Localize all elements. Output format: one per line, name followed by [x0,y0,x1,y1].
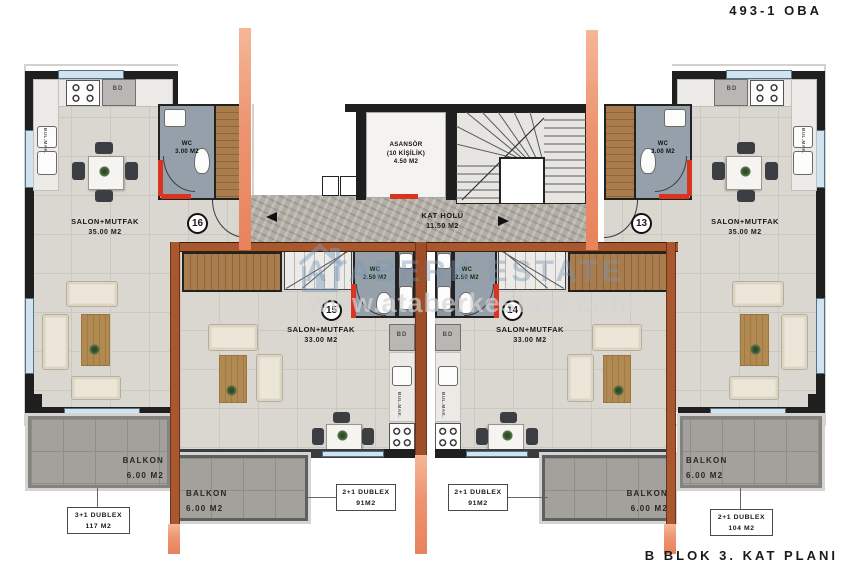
leader-line [97,488,98,507]
elevator-label: ASANSÖR (10 KİŞİLİK) 4.50 M2 [366,141,446,167]
room-label: SALON+MUTFAK 33.00 M2 [477,325,583,346]
fridge-label: BD [102,86,134,92]
balcony-label: BALKON 6.00 M2 [186,486,256,516]
plan-caption: B BLOK 3. KAT PLANI [645,548,838,563]
leader-line [740,488,741,509]
fridge-label: BD [389,332,415,338]
balcony-label: BALKON 6.00 M2 [100,453,164,483]
appliance-label: BUL.MAK. [440,392,445,418]
unit-tag: 3+1 DUBLEX 117 M2 [67,507,130,534]
unit-number: 16 [187,213,208,234]
labels: SALON+MUTFAK 35.00 M2 WC 3.00 M2 16 BALK… [0,0,850,566]
wc-label: WC 2.50 M2 [352,266,398,283]
room-label: SALON+MUTFAK 35.00 M2 [52,217,158,238]
unit-number: 13 [631,213,652,234]
fridge-label: BD [716,86,748,92]
balcony-label: BALKON 6.00 M2 [686,453,750,483]
appliance-label: BUL.MAK. [396,392,401,418]
unit-number: 14 [502,300,523,321]
leader-line [308,497,336,498]
wc-label: WC 2.50 M2 [444,266,490,283]
balcony-label: BALKON 6.00 M2 [598,486,668,516]
unit-number: 15 [321,300,342,321]
leader-line [508,497,548,498]
appliance-label: BUL.MAK. [800,128,805,154]
wc-label: WC 3.00 M2 [636,140,690,157]
project-code: 493-1 OBA [729,3,822,18]
room-label: SALON+MUTFAK 33.00 M2 [268,325,374,346]
unit-tag: 2+1 DUBLEX 104 M2 [710,509,773,536]
fridge-label: BD [435,332,461,338]
wc-label: WC 3.00 M2 [160,140,214,157]
room-label: SALON+MUTFAK 35.00 M2 [692,217,798,238]
hall-label: KAT HOLÜ 11.50 M2 [390,211,495,232]
unit-tag: 2+1 DUBLEX 91M2 [336,484,396,511]
unit-tag: 2+1 DUBLEX 91M2 [448,484,508,511]
floor-plan-canvas: SALON+MUTFAK 35.00 M2 WC 3.00 M2 16 BALK… [0,0,850,566]
appliance-label: BUL.MAK. [42,128,47,154]
